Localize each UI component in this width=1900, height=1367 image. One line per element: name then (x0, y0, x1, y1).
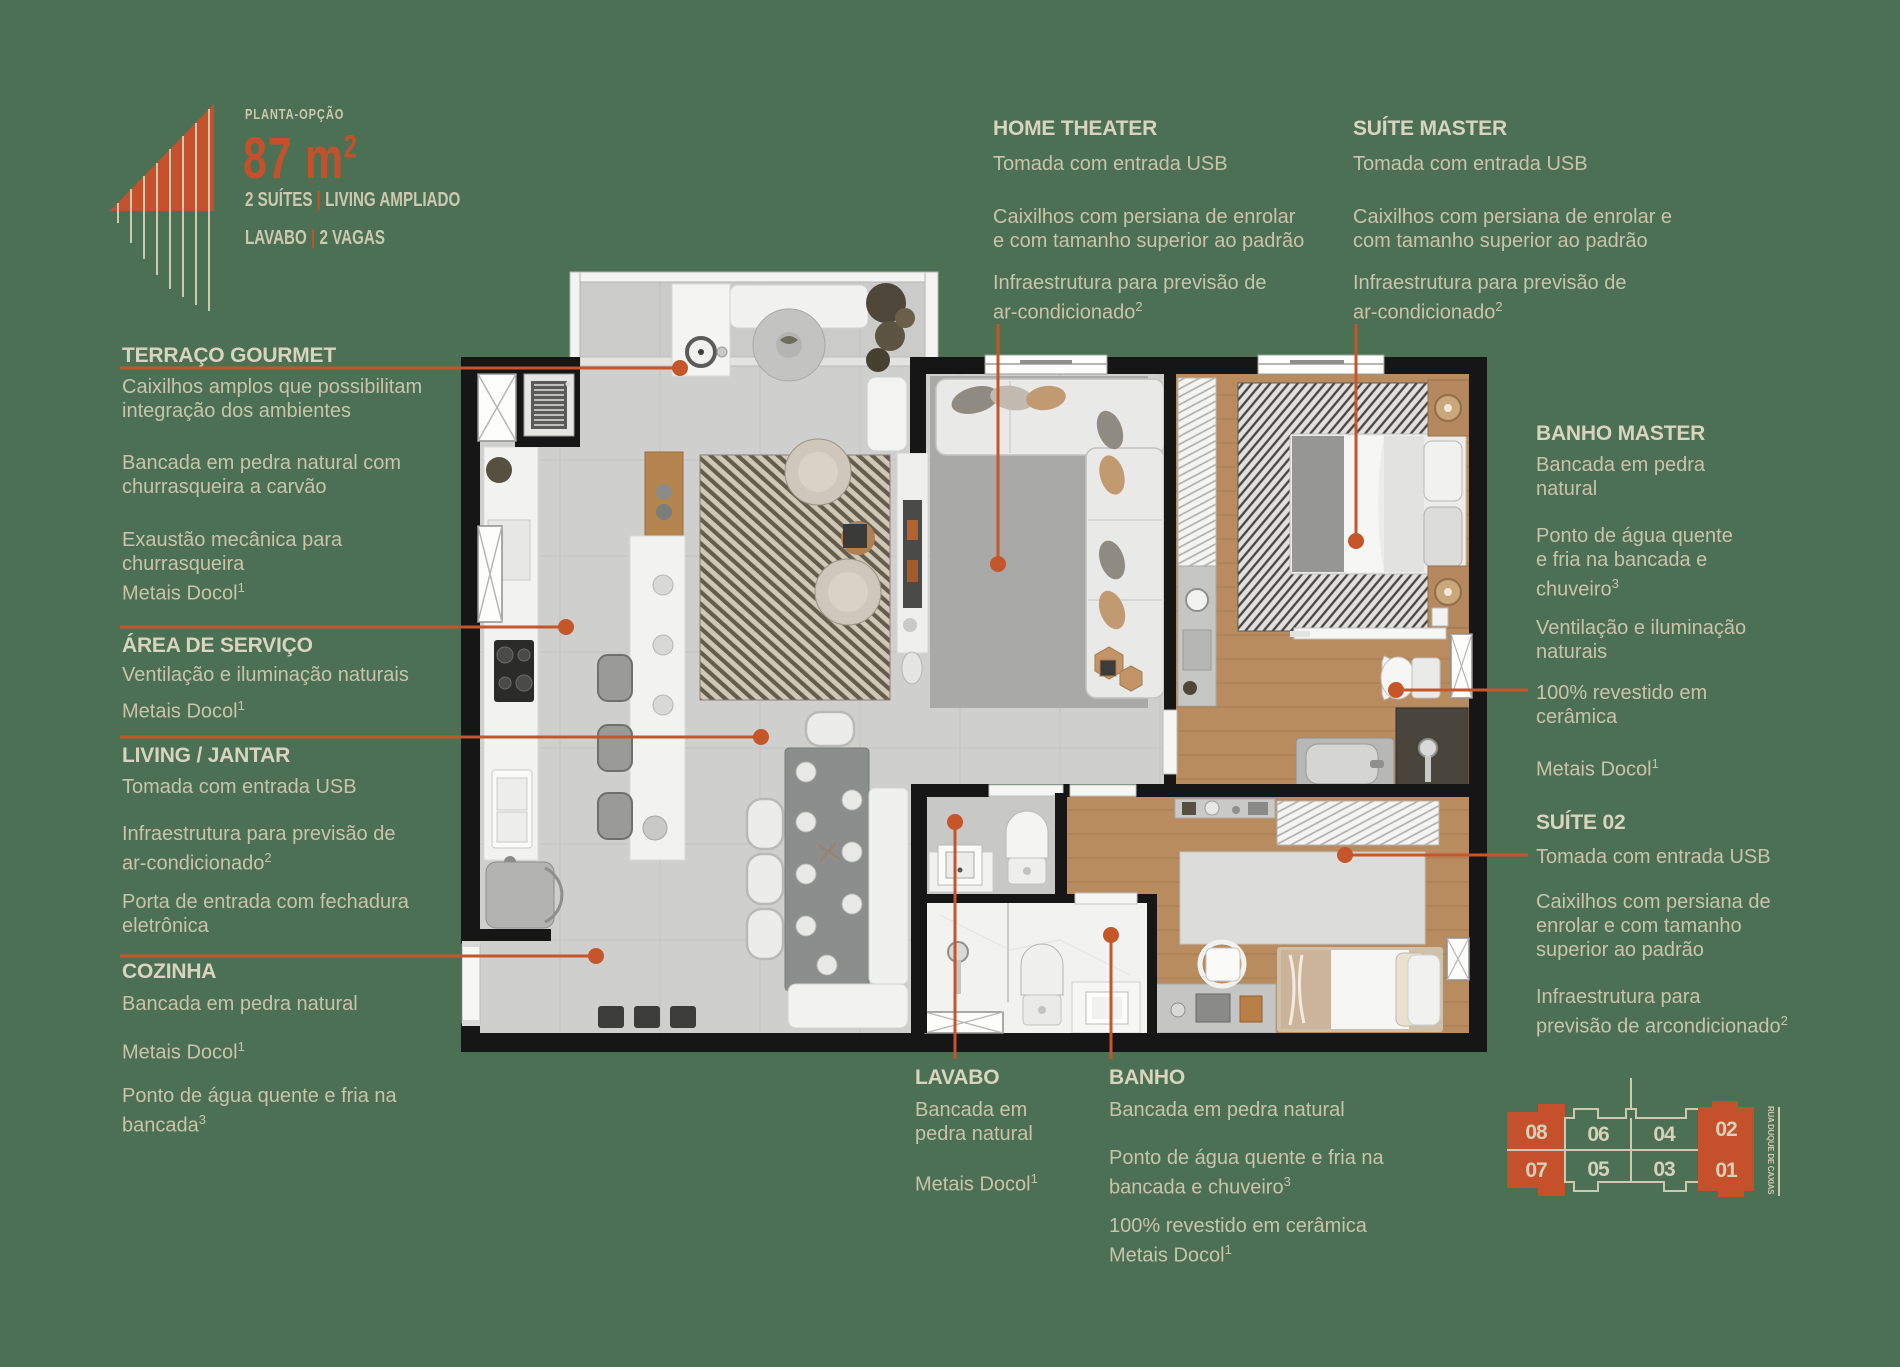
svg-text:04: 04 (1653, 1123, 1676, 1146)
svg-text:RUA DUQUE DE CAXIAS: RUA DUQUE DE CAXIAS (1766, 1106, 1775, 1195)
svg-text:05: 05 (1587, 1158, 1610, 1181)
svg-text:08: 08 (1525, 1121, 1548, 1144)
svg-text:03: 03 (1653, 1158, 1675, 1181)
svg-text:02: 02 (1715, 1118, 1737, 1141)
svg-text:01: 01 (1715, 1159, 1738, 1182)
svg-text:07: 07 (1525, 1159, 1547, 1182)
svg-text:06: 06 (1587, 1123, 1609, 1146)
